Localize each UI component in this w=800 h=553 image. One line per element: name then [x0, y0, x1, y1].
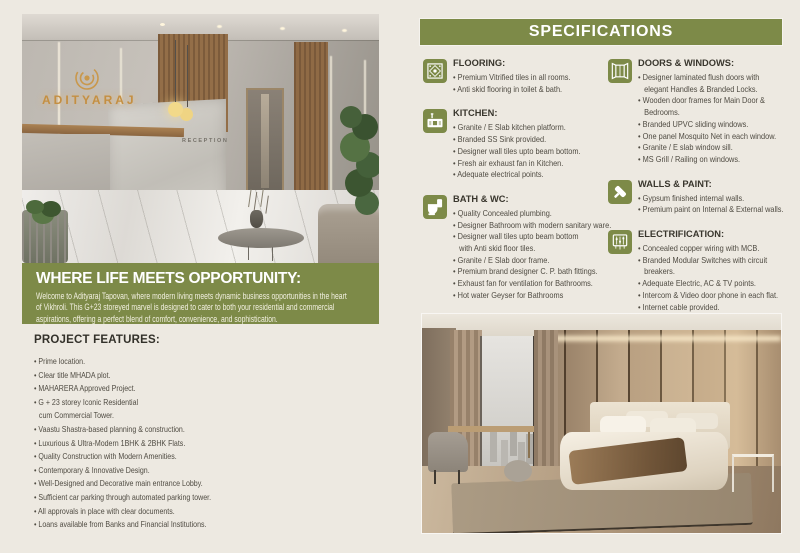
reception-sign: RECEPTION	[182, 138, 229, 144]
spec-section: BATH & WC:• Quality Concealed plumbing.•…	[423, 194, 608, 302]
lobby-vase	[250, 210, 263, 228]
spec-item-list: • Concealed copper wiring with MCB.• Bra…	[638, 243, 770, 313]
spec-item: • Hot water Geyser for Bathrooms	[453, 290, 589, 302]
bedroom-window	[480, 336, 536, 476]
feature-item: • MAHARERA Approved Project.	[34, 382, 337, 396]
feature-item: • G + 23 storey Iconic Residential cum C…	[34, 396, 337, 423]
lobby-downlights	[160, 23, 165, 26]
spec-item: • MS Grill / Railing on windows.	[638, 154, 770, 166]
brochure-page: { "colors": { "page_bg": "#ede9e1", "acc…	[0, 0, 800, 553]
spec-item: • Granite / E slab window sill.	[638, 142, 770, 154]
floor-tile-icon	[423, 59, 447, 83]
spec-item: • Adequate Electric, AC & TV points.	[638, 278, 770, 290]
feature-item: • Prime location.	[34, 355, 337, 369]
spec-item-list: • Gypsum finished internal walls.• Premi…	[638, 193, 770, 216]
spec-section-body: ELECTRIFICATION:• Concealed copper wirin…	[638, 229, 788, 313]
spec-item: • Premium brand designer C. P. bath fitt…	[453, 266, 589, 278]
feature-item: • Quality Construction with Modern Ameni…	[34, 450, 337, 464]
spec-item: • Designer wall tiles upto beam bottom w…	[453, 231, 589, 254]
spec-column-2: DOORS & WINDOWS:• Designer laminated flu…	[608, 56, 788, 326]
spec-item: • Fresh air exhaust fan in Kitchen.	[453, 158, 589, 170]
feature-item: • Vaastu Shastra-based planning & constr…	[34, 423, 337, 437]
spec-section-title: WALLS & PAINT:	[638, 179, 788, 189]
lobby-planter-baskets	[22, 210, 68, 263]
project-features-heading: PROJECT FEATURES:	[34, 334, 404, 346]
spec-section-body: WALLS & PAINT:• Gypsum finished internal…	[638, 179, 788, 216]
spec-item: • Branded UPVC sliding windows.	[638, 119, 770, 131]
paint-roller-icon	[608, 180, 632, 204]
spec-column-1: FLOORING:• Premium Vitrified tiles in al…	[423, 56, 608, 315]
lobby-elevator-door	[246, 88, 284, 194]
spec-section-title: DOORS & WINDOWS:	[638, 58, 788, 68]
spec-item: • One panel Mosquito Net in each window.	[638, 131, 770, 143]
lobby-photo: RECEPTION ADITYARAJ	[22, 14, 379, 263]
project-features-list: • Prime location.• Clear title MHADA plo…	[34, 355, 337, 532]
window-open-icon	[608, 59, 632, 83]
feature-item: • Contemporary & Innovative Design.	[34, 464, 337, 478]
feature-item: • Sufficient car parking through automat…	[34, 491, 337, 505]
bedroom-side-table	[732, 454, 774, 492]
spec-item: • Anti skid flooring in toilet & bath.	[453, 84, 589, 96]
spec-item: • Gypsum finished internal walls.	[638, 193, 770, 205]
brand-logo-icon	[70, 64, 104, 94]
spec-item: • Quality Concealed plumbing.	[453, 208, 589, 220]
bedroom-photo	[422, 314, 781, 533]
spec-section-body: BATH & WC:• Quality Concealed plumbing.•…	[453, 194, 608, 302]
spec-item: • Branded SS Sink provided.	[453, 134, 589, 146]
bedroom-cove-light	[534, 336, 781, 341]
spec-section-body: FLOORING:• Premium Vitrified tiles in al…	[453, 58, 608, 95]
spec-section: FLOORING:• Premium Vitrified tiles in al…	[423, 58, 608, 95]
hero-body-text: Welcome to Adityaraj Tapovan, where mode…	[36, 291, 286, 324]
spec-section: ELECTRIFICATION:• Concealed copper wirin…	[608, 229, 788, 313]
spec-item: • Adequate electrical points.	[453, 169, 589, 181]
spec-section: WALLS & PAINT:• Gypsum finished internal…	[608, 179, 788, 216]
bedroom-console-desk	[448, 426, 534, 432]
spec-item: • Concealed copper wiring with MCB.	[638, 243, 770, 255]
spec-item: • Internet cable provided.	[638, 302, 770, 314]
spec-section-title: BATH & WC:	[453, 194, 608, 204]
project-features-section: PROJECT FEATURES: • Prime location.• Cle…	[34, 334, 404, 532]
electrical-panel-icon	[608, 230, 632, 254]
spec-item-list: • Premium Vitrified tiles in all rooms.•…	[453, 72, 589, 95]
spec-section-title: ELECTRIFICATION:	[638, 229, 788, 239]
feature-item: • All approvals in place with clear docu…	[34, 505, 337, 519]
spec-item: • Designer wall tiles upto beam bottom.	[453, 146, 589, 158]
spec-section-title: FLOORING:	[453, 58, 608, 68]
brand-wordmark: ADITYARAJ	[42, 93, 202, 107]
spec-item: • Branded Modular Switches with circuit …	[638, 255, 770, 278]
toilet-icon	[423, 195, 447, 219]
spec-item-list: • Granite / E Slab kitchen platform.• Br…	[453, 122, 589, 181]
spec-item: • Wooden door frames for Main Door & Bed…	[638, 95, 770, 118]
spec-item-list: • Designer laminated flush doors with el…	[638, 72, 770, 166]
feature-item: • Clear title MHADA plot.	[34, 369, 337, 383]
bedroom-chair	[428, 432, 468, 472]
spec-section-title: KITCHEN:	[453, 108, 608, 118]
kitchen-sink-icon	[423, 109, 447, 133]
bedroom-curtain-right	[534, 330, 558, 478]
spec-section: DOORS & WINDOWS:• Designer laminated flu…	[608, 58, 788, 166]
feature-item: • Loans available from Banks and Financi…	[34, 518, 337, 532]
spec-section-body: KITCHEN:• Granite / E Slab kitchen platf…	[453, 108, 608, 181]
specifications-header: SPECIFICATIONS	[420, 19, 782, 45]
spec-item: • Premium Vitrified tiles in all rooms.	[453, 72, 589, 84]
lobby-sofa	[318, 204, 379, 263]
spec-item: • Intercom & Video door phone in each fl…	[638, 290, 770, 302]
spec-section-body: DOORS & WINDOWS:• Designer laminated flu…	[638, 58, 788, 166]
hero-banner: WHERE LIFE MEETS OPPORTUNITY: Welcome to…	[22, 263, 379, 324]
feature-item: • Well-Designed and Decorative main entr…	[34, 477, 337, 491]
hero-heading: WHERE LIFE MEETS OPPORTUNITY:	[36, 270, 365, 288]
spec-item: • Designer laminated flush doors with el…	[638, 72, 770, 95]
lobby-wood-panel-right	[294, 42, 328, 194]
spec-item: • Exhaust fan for ventilation for Bathro…	[453, 278, 589, 290]
spec-item: • Granite / E Slab door frame.	[453, 255, 589, 267]
lobby-coffee-table	[218, 228, 304, 248]
lobby-plant	[340, 106, 362, 128]
feature-item: • Luxurious & Ultra-Modern 1BHK & 2BHK F…	[34, 437, 337, 451]
spec-section: KITCHEN:• Granite / E Slab kitchen platf…	[423, 108, 608, 181]
spec-item: • Designer Bathroom with modern sanitary…	[453, 220, 589, 232]
bedroom-ottoman	[504, 460, 532, 482]
spec-item-list: • Quality Concealed plumbing.• Designer …	[453, 208, 589, 302]
spec-item: • Premium paint on Internal & External w…	[638, 204, 770, 216]
spec-item: • Granite / E Slab kitchen platform.	[453, 122, 589, 134]
